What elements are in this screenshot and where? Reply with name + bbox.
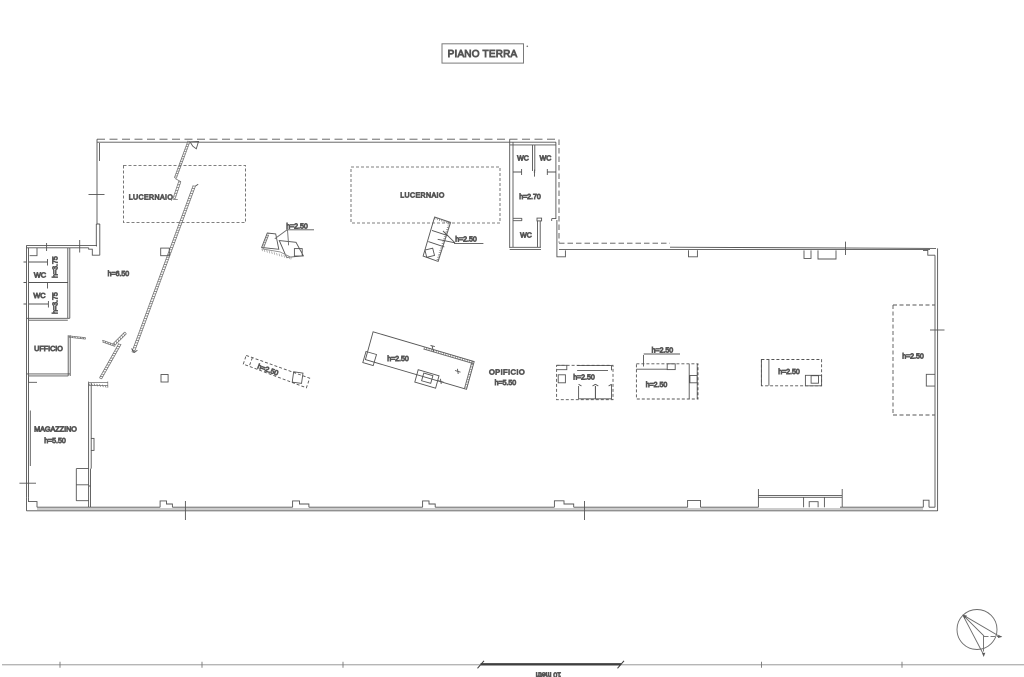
svg-text:PIANO TERRA: PIANO TERRA — [448, 49, 518, 60]
svg-text:h=2.50: h=2.50 — [573, 375, 595, 382]
svg-text:h=2.50: h=2.50 — [646, 382, 668, 389]
svg-text:h=5.50: h=5.50 — [495, 380, 517, 387]
svg-text:LUCERNAIO: LUCERNAIO — [129, 195, 174, 202]
svg-text:h=3.75: h=3.75 — [53, 292, 60, 314]
svg-text:UFFICIO: UFFICIO — [34, 344, 63, 353]
svg-text:WC: WC — [517, 156, 529, 163]
svg-text:h=2.50: h=2.50 — [286, 223, 308, 230]
svg-text:h=3.75: h=3.75 — [53, 256, 60, 278]
svg-text:h=2.50: h=2.50 — [778, 369, 800, 376]
svg-text:h=6.50: h=6.50 — [108, 271, 130, 278]
svg-text:h=2.50: h=2.50 — [387, 356, 409, 363]
svg-text:MAGAZZINO: MAGAZZINO — [34, 425, 77, 434]
svg-text:WC: WC — [540, 156, 552, 163]
svg-text:h=2.50: h=2.50 — [455, 236, 477, 243]
svg-text:OPIFICIO: OPIFICIO — [489, 368, 525, 377]
svg-text:WC: WC — [34, 271, 47, 280]
svg-text:WC: WC — [33, 291, 46, 300]
svg-text:WC: WC — [520, 233, 532, 240]
svg-text:h=5.50: h=5.50 — [44, 438, 66, 445]
svg-text:h=2.70: h=2.70 — [519, 194, 541, 201]
svg-text:10 metri: 10 metri — [535, 671, 561, 677]
svg-text:h=2.50: h=2.50 — [902, 354, 924, 361]
svg-text:LUCERNAIO: LUCERNAIO — [400, 193, 445, 200]
